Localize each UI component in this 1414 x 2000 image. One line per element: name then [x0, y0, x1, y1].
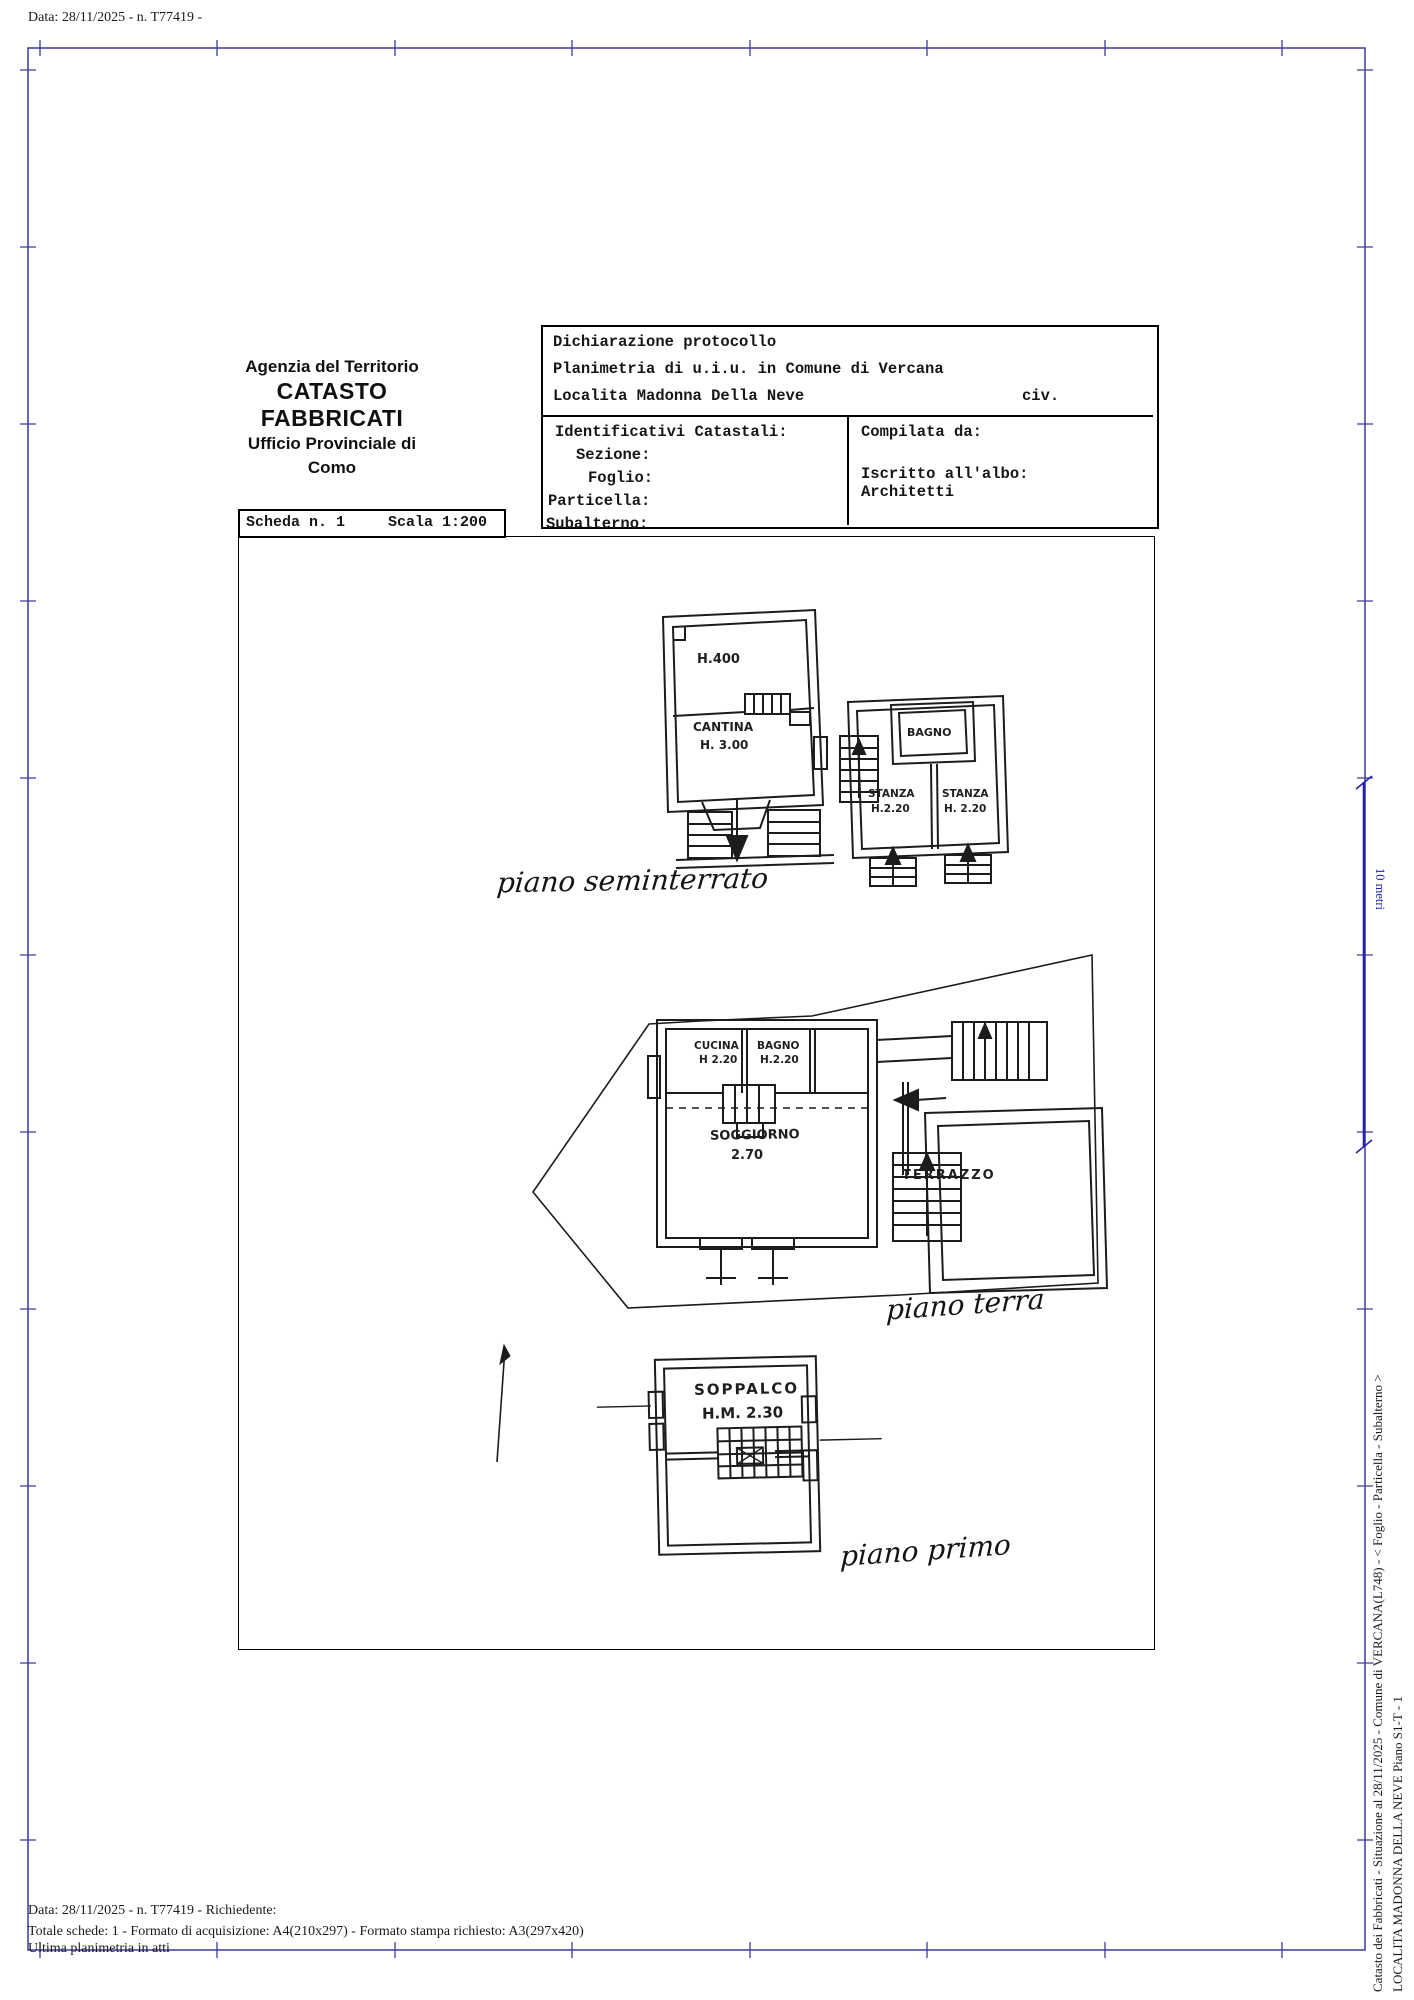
north-arrow-icon: [497, 1345, 510, 1462]
room-label-soggiorno: SOGGIORNO: [710, 1127, 800, 1144]
room-label-cucina-h: H 2.20: [699, 1054, 737, 1066]
registry-title: CATASTO FABBRICATI: [210, 378, 454, 432]
foglio-label: Foglio:: [588, 469, 653, 487]
scala-label: Scala 1:200: [388, 514, 487, 531]
page: { "colors": { "frame_blue": "#3c3c9c", "…: [0, 0, 1414, 2000]
identificativi-title: Identificativi Catastali:: [555, 423, 788, 441]
scale-bar-label: 10 metri: [1372, 868, 1387, 910]
sidebar-text-line-2: LOCALITA MADONNA DELLA NEVE Piano S1-T -…: [1390, 1696, 1406, 1992]
room-label-terrazzo: TERRAZZO: [902, 1168, 996, 1183]
room-label-bagno-s1: BAGNO: [907, 726, 951, 739]
subalterno-label: Subalterno:: [546, 515, 648, 533]
office-city: Como: [210, 458, 454, 478]
caption-piano-seminterrato: piano seminterrato: [496, 862, 770, 900]
footer-line-3: Ultima planimetria in atti: [28, 1941, 170, 1957]
civ-label: civ.: [1022, 387, 1059, 405]
scheda-box: Scheda n. 1 Scala 1:200: [238, 509, 506, 538]
room-label-stanza-2: STANZA: [942, 788, 989, 800]
table-col-divider: [847, 417, 849, 525]
compilata-label: Compilata da:: [861, 423, 982, 441]
protocol-line-2: Planimetria di u.i.u. in Comune di Verca…: [553, 360, 944, 378]
sidebar-text-line-1: Catasto dei Fabbricati - Situazione al 2…: [1370, 1374, 1386, 1992]
room-label-soggiorno-h: 2.70: [731, 1148, 763, 1163]
office-line: Ufficio Provinciale di: [210, 434, 454, 454]
scheda-number: Scheda n. 1: [246, 514, 345, 531]
room-label-soppalco-h: H.M. 2.30: [702, 1403, 783, 1422]
footer-line-1: Data: 28/11/2025 - n. T77419 - Richieden…: [28, 1903, 276, 1919]
room-label-soppalco: SOPPALCO: [694, 1379, 799, 1399]
room-label-cantina-h: H. 3.00: [700, 738, 748, 752]
room-label-h400: H.400: [697, 652, 740, 667]
protocol-table: Dichiarazione protocollo Planimetria di …: [541, 325, 1159, 529]
plan-terra-drawing: [533, 955, 1107, 1308]
sezione-label: Sezione:: [576, 446, 650, 464]
agency-header: Agenzia del Territorio CATASTO FABBRICAT…: [210, 357, 454, 478]
scale-bar: [1356, 776, 1372, 1153]
room-label-stanza-1: STANZA: [868, 788, 915, 800]
iscritto-label: Iscritto all'albo:: [861, 465, 1028, 483]
albo-label: Architetti: [861, 483, 954, 501]
floor-plans-drawing: [238, 535, 1155, 1650]
protocol-line-3: Localita Madonna Della Neve: [553, 387, 804, 405]
room-label-bagno-t: BAGNO: [757, 1040, 799, 1052]
room-label-cantina: CANTINA: [693, 720, 753, 734]
protocol-line-1: Dichiarazione protocollo: [553, 333, 776, 351]
room-label-bagno-t-h: H.2.20: [760, 1054, 799, 1066]
footer-line-2: Totale schede: 1 - Formato di acquisizio…: [28, 1924, 584, 1940]
room-label-cucina: CUCINA: [694, 1040, 739, 1052]
agency-name: Agenzia del Territorio: [210, 357, 454, 377]
document-date-note: Data: 28/11/2025 - n. T77419 -: [28, 10, 202, 26]
room-label-stanza-2h: H. 2.20: [944, 803, 986, 815]
room-label-stanza-1h: H.2.20: [871, 803, 910, 815]
particella-label: Particella:: [548, 492, 650, 510]
